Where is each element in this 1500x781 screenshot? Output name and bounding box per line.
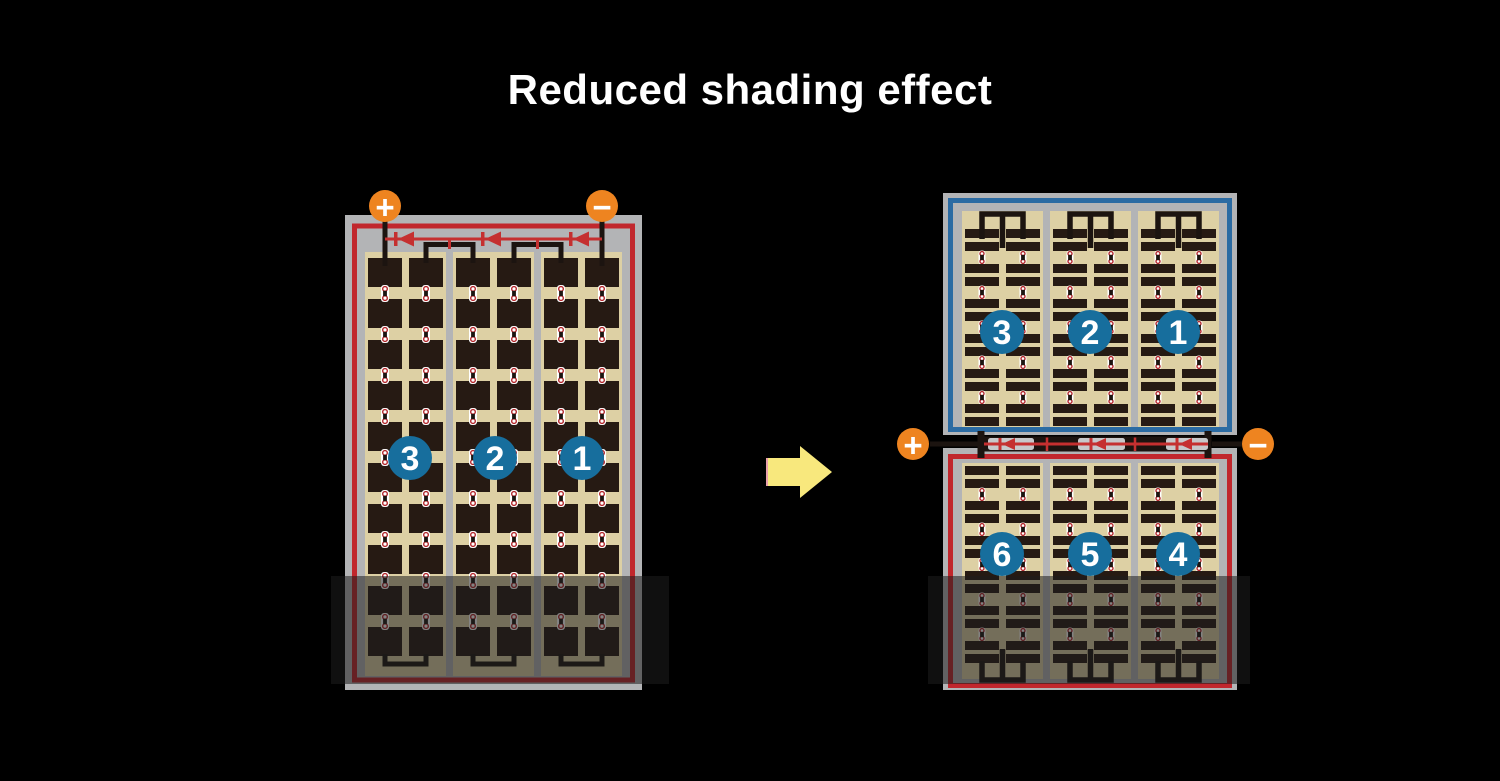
solar-half-cell (1006, 382, 1040, 391)
solar-cell (585, 545, 619, 574)
connector-dot-top (424, 287, 429, 292)
connector-bar (980, 395, 984, 400)
solar-cell (368, 381, 402, 410)
solar-cell (368, 545, 402, 574)
connector-dot-bottom (383, 378, 388, 383)
connector-bar (1156, 492, 1160, 497)
solar-half-cell (1182, 404, 1216, 413)
connector-bar (1109, 492, 1113, 497)
connector-dot-bottom (600, 378, 605, 383)
negative-terminal-right: − (1242, 427, 1274, 464)
solar-cell (456, 381, 490, 410)
solar-cell (544, 545, 578, 574)
connector-bar (1068, 492, 1072, 497)
string-number: 2 (1081, 314, 1100, 352)
connector-dot-top (600, 533, 605, 538)
connector-bar (1021, 255, 1025, 260)
shading-effect-diagram: 3 2 1 3 2 1 6 5 4 + − (0, 0, 1500, 781)
solar-half-cell (1182, 299, 1216, 308)
connector-bar (1068, 290, 1072, 295)
solar-half-cell (1094, 299, 1128, 308)
solar-half-cell (1006, 514, 1040, 523)
connector-dot-top (424, 533, 429, 538)
solar-half-cell (1094, 382, 1128, 391)
string-badge-left-1: 1 (560, 436, 604, 480)
terminal-wire (383, 220, 388, 266)
connector-bar (559, 414, 563, 419)
solar-half-cell (1053, 242, 1087, 251)
solar-half-cell (965, 479, 999, 488)
connector-dot-top (383, 287, 388, 292)
solar-half-cell (1094, 277, 1128, 286)
solar-half-cell (1053, 466, 1087, 475)
connector-dot-bottom (512, 296, 517, 301)
connector-dot-bottom (600, 542, 605, 547)
solar-cell (585, 381, 619, 410)
solar-half-cell (1006, 242, 1040, 251)
diagram-stage: 3 2 1 3 2 1 6 5 4 + − (0, 0, 1500, 781)
connector-bar (980, 527, 984, 532)
string-number: 6 (993, 536, 1012, 574)
solar-cell (585, 340, 619, 369)
solar-half-cell (965, 299, 999, 308)
connector-dot-top (471, 410, 476, 415)
shading-overlay-left (331, 576, 669, 684)
connector-bar (559, 373, 563, 378)
connector-bar (600, 373, 604, 378)
connector-bar (471, 332, 475, 337)
solar-cell (409, 504, 443, 533)
connector-bar (1109, 290, 1113, 295)
solar-cell (368, 504, 402, 533)
solar-half-cell (965, 382, 999, 391)
connector-bar (600, 291, 604, 296)
solar-cell (409, 299, 443, 328)
connector-bar (980, 360, 984, 365)
connector-dot-top (383, 533, 388, 538)
solar-half-cell (1053, 501, 1087, 510)
string-number: 1 (1169, 314, 1188, 352)
solar-cell (544, 381, 578, 410)
connector-bar (1156, 360, 1160, 365)
solar-cell (497, 381, 531, 410)
solar-half-cell (965, 466, 999, 475)
solar-half-cell (1094, 264, 1128, 273)
connector-dot-top (424, 492, 429, 497)
connector-bar (1109, 527, 1113, 532)
solar-half-cell (1141, 369, 1175, 378)
solar-cell (368, 299, 402, 328)
solar-cell (544, 299, 578, 328)
connector-bar (383, 373, 387, 378)
string-number: 2 (486, 440, 505, 478)
solar-half-cell (1141, 417, 1175, 426)
solar-cell (456, 545, 490, 574)
connector-bar (1197, 527, 1201, 532)
connector-dot-top (512, 328, 517, 333)
connector-dot-top (383, 410, 388, 415)
connector-bar (383, 332, 387, 337)
connector-dot-bottom (424, 337, 429, 342)
solar-half-cell (1182, 369, 1216, 378)
connector-dot-bottom (471, 296, 476, 301)
solar-half-cell (1053, 404, 1087, 413)
connector-bar (1021, 395, 1025, 400)
solar-half-cell (1182, 277, 1216, 286)
solar-half-cell (965, 404, 999, 413)
connector-dot-bottom (383, 542, 388, 547)
solar-half-cell (1141, 382, 1175, 391)
solar-half-cell (1006, 404, 1040, 413)
connector-bar (600, 332, 604, 337)
connector-dot-bottom (600, 296, 605, 301)
solar-half-cell (1141, 264, 1175, 273)
connector-bar (980, 492, 984, 497)
string-badge-right-top-3: 3 (980, 310, 1024, 354)
connector-bar (512, 496, 516, 501)
string-badge-right-bottom-5: 5 (1068, 532, 1112, 576)
solar-half-cell (965, 277, 999, 286)
solar-cell (497, 545, 531, 574)
solar-cell (456, 504, 490, 533)
solar-half-cell (1094, 501, 1128, 510)
solar-half-cell (1141, 501, 1175, 510)
connector-dot-top (471, 492, 476, 497)
connector-bar (1068, 527, 1072, 532)
connector-dot-bottom (383, 337, 388, 342)
connector-bar (383, 414, 387, 419)
connector-dot-bottom (383, 296, 388, 301)
connector-bar (424, 414, 428, 419)
connector-bar (600, 496, 604, 501)
connector-bar (471, 414, 475, 419)
solar-half-cell (1182, 466, 1216, 475)
solar-half-cell (1141, 242, 1175, 251)
connector-bar (512, 537, 516, 542)
solar-half-cell (1006, 479, 1040, 488)
connector-bar (424, 291, 428, 296)
transition-arrow (766, 446, 832, 498)
connector-bar (1156, 527, 1160, 532)
solar-half-cell (1141, 404, 1175, 413)
solar-cell (585, 504, 619, 533)
connector-dot-bottom (512, 378, 517, 383)
connector-bar (383, 455, 387, 460)
connector-dot-bottom (559, 542, 564, 547)
string-number: 4 (1169, 536, 1188, 574)
solar-half-cell (1053, 382, 1087, 391)
connector-bar (1021, 527, 1025, 532)
solar-half-cell (1094, 242, 1128, 251)
connector-bar (1109, 395, 1113, 400)
connector-dot-top (424, 410, 429, 415)
connector-dot-bottom (512, 501, 517, 506)
connector-bar (1156, 290, 1160, 295)
positive-terminal-right: + (897, 427, 929, 464)
solar-half-cell (1006, 501, 1040, 510)
connector-dot-top (512, 492, 517, 497)
solar-cell (456, 340, 490, 369)
connector-dot-top (383, 451, 388, 456)
connector-bar (383, 496, 387, 501)
connector-dot-bottom (559, 419, 564, 424)
solar-half-cell (1182, 264, 1216, 273)
terminal-wire (600, 220, 605, 266)
connector-bar (559, 496, 563, 501)
connector-bar (424, 332, 428, 337)
connector-dot-bottom (424, 542, 429, 547)
connector-dot-top (512, 369, 517, 374)
diode-cathode-bar (1090, 438, 1093, 450)
solar-cell (409, 545, 443, 574)
connector-bar (1197, 492, 1201, 497)
connector-dot-top (600, 492, 605, 497)
connector-bar (1068, 395, 1072, 400)
connector-bar (1068, 360, 1072, 365)
solar-half-cell (1141, 277, 1175, 286)
string-badge-left-2: 2 (473, 436, 517, 480)
connector-dot-top (383, 328, 388, 333)
solar-half-cell (1182, 514, 1216, 523)
connector-bar (559, 537, 563, 542)
connector-bar (1197, 290, 1201, 295)
solar-half-cell (1094, 479, 1128, 488)
connector-dot-top (600, 369, 605, 374)
connector-dot-bottom (424, 501, 429, 506)
connector-dot-top (559, 287, 564, 292)
solar-half-cell (1006, 299, 1040, 308)
connector-bar (1109, 255, 1113, 260)
string-number: 3 (993, 314, 1012, 352)
connector-dot-top (471, 369, 476, 374)
connector-bar (1021, 492, 1025, 497)
page-title: Reduced shading effect (508, 66, 993, 113)
connector-bar (980, 290, 984, 295)
connector-dot-top (383, 369, 388, 374)
connector-bar (512, 414, 516, 419)
solar-cell (456, 299, 490, 328)
connector-dot-top (424, 369, 429, 374)
solar-half-cell (1182, 242, 1216, 251)
connector-dot-top (600, 410, 605, 415)
string-number: 1 (573, 440, 592, 478)
connector-dot-bottom (559, 296, 564, 301)
connector-dot-top (471, 328, 476, 333)
diode-cathode-bar (481, 232, 485, 246)
connector-dot-top (559, 410, 564, 415)
right-arrow-icon (768, 446, 832, 498)
connector-dot-top (471, 533, 476, 538)
connector-dot-bottom (559, 378, 564, 383)
connector-dot-top (600, 287, 605, 292)
solar-half-cell (1182, 417, 1216, 426)
connector-bar (980, 255, 984, 260)
connector-dot-top (512, 533, 517, 538)
solar-half-cell (965, 264, 999, 273)
connector-dot-bottom (424, 296, 429, 301)
connector-dot-bottom (512, 337, 517, 342)
solar-half-cell (1053, 264, 1087, 273)
connector-dot-bottom (471, 419, 476, 424)
connector-dot-top (424, 328, 429, 333)
shading-overlay-right (928, 576, 1250, 684)
solar-cell (409, 340, 443, 369)
connector-dot-bottom (471, 337, 476, 342)
terminal-wire (1212, 442, 1242, 447)
connector-bar (1197, 255, 1201, 260)
solar-half-cell (965, 242, 999, 251)
connector-bar (559, 291, 563, 296)
connector-bar (559, 332, 563, 337)
connector-dot-top (559, 328, 564, 333)
connector-bar (1197, 360, 1201, 365)
solar-half-cell (1094, 514, 1128, 523)
solar-cell (368, 340, 402, 369)
connector-dot-bottom (424, 378, 429, 383)
solar-half-cell (1006, 277, 1040, 286)
solar-cell (544, 504, 578, 533)
connector-dot-top (512, 287, 517, 292)
connector-dot-bottom (559, 337, 564, 342)
solar-cell (497, 504, 531, 533)
connector-dot-top (559, 492, 564, 497)
connector-dot-bottom (383, 460, 388, 465)
solar-half-cell (1006, 264, 1040, 273)
string-badge-right-bottom-6: 6 (980, 532, 1024, 576)
solar-half-cell (1094, 404, 1128, 413)
solar-half-cell (1182, 479, 1216, 488)
solar-half-cell (1053, 417, 1087, 426)
connector-dot-bottom (424, 419, 429, 424)
connector-dot-bottom (600, 419, 605, 424)
solar-half-cell (1006, 466, 1040, 475)
connector-bar (471, 373, 475, 378)
connector-bar (471, 496, 475, 501)
connector-dot-bottom (383, 501, 388, 506)
string-badge-right-bottom-4: 4 (1156, 532, 1200, 576)
diode-cathode-bar (394, 232, 398, 246)
solar-half-cell (1182, 501, 1216, 510)
connector-bar (1197, 395, 1201, 400)
connector-dot-top (471, 287, 476, 292)
solar-half-cell (965, 369, 999, 378)
connector-dot-bottom (512, 419, 517, 424)
connector-dot-bottom (383, 419, 388, 424)
solar-half-cell (1094, 417, 1128, 426)
diode-cathode-bar (569, 232, 573, 246)
solar-half-cell (1053, 514, 1087, 523)
connector-dot-bottom (512, 542, 517, 547)
connector-dot-top (559, 533, 564, 538)
connector-bar (424, 373, 428, 378)
connector-bar (1109, 360, 1113, 365)
string-badge-right-top-1: 1 (1156, 310, 1200, 354)
connector-bar (512, 373, 516, 378)
connector-bar (471, 291, 475, 296)
solar-half-cell (965, 501, 999, 510)
connector-dot-top (600, 328, 605, 333)
string-badge-right-top-2: 2 (1068, 310, 1112, 354)
connector-dot-top (559, 369, 564, 374)
string-badge-left-3: 3 (388, 436, 432, 480)
solar-half-cell (1141, 299, 1175, 308)
connector-bar (512, 332, 516, 337)
diode-cathode-bar (999, 438, 1002, 450)
connector-dot-bottom (600, 337, 605, 342)
solar-cell (544, 340, 578, 369)
terminal-wire (930, 442, 982, 447)
connector-dot-top (512, 410, 517, 415)
solar-half-cell (1053, 479, 1087, 488)
diode-cathode-bar (1176, 438, 1179, 450)
solar-half-cell (1053, 369, 1087, 378)
solar-half-cell (1182, 382, 1216, 391)
solar-half-cell (1141, 466, 1175, 475)
connector-bar (600, 537, 604, 542)
solar-half-cell (1141, 479, 1175, 488)
connector-dot-bottom (471, 501, 476, 506)
connector-dot-bottom (471, 378, 476, 383)
connector-bar (512, 291, 516, 296)
solar-cell (497, 340, 531, 369)
connector-dot-bottom (559, 501, 564, 506)
connector-bar (383, 537, 387, 542)
connector-bar (1156, 395, 1160, 400)
connector-bar (1021, 360, 1025, 365)
solar-cell (409, 381, 443, 410)
string-number: 5 (1081, 536, 1100, 574)
connector-dot-bottom (471, 542, 476, 547)
plus-symbol: + (375, 189, 394, 226)
solar-half-cell (1053, 299, 1087, 308)
connector-bar (1068, 255, 1072, 260)
connector-bar (424, 537, 428, 542)
solar-half-cell (965, 417, 999, 426)
connector-bar (1021, 290, 1025, 295)
connector-bar (1156, 255, 1160, 260)
plus-symbol: + (903, 427, 922, 464)
solar-half-cell (965, 514, 999, 523)
minus-symbol: − (1248, 427, 1267, 464)
connector-dot-top (383, 492, 388, 497)
solar-half-cell (1094, 466, 1128, 475)
connector-bar (383, 291, 387, 296)
solar-half-cell (1006, 369, 1040, 378)
solar-cell (585, 299, 619, 328)
minus-symbol: − (592, 189, 611, 226)
solar-half-cell (1094, 369, 1128, 378)
solar-cell (497, 299, 531, 328)
connector-bar (600, 414, 604, 419)
solar-half-cell (1006, 417, 1040, 426)
connector-dot-bottom (600, 501, 605, 506)
connector-bar (471, 537, 475, 542)
connector-bar (424, 496, 428, 501)
solar-half-cell (1053, 277, 1087, 286)
solar-half-cell (1141, 514, 1175, 523)
string-number: 3 (401, 440, 420, 478)
